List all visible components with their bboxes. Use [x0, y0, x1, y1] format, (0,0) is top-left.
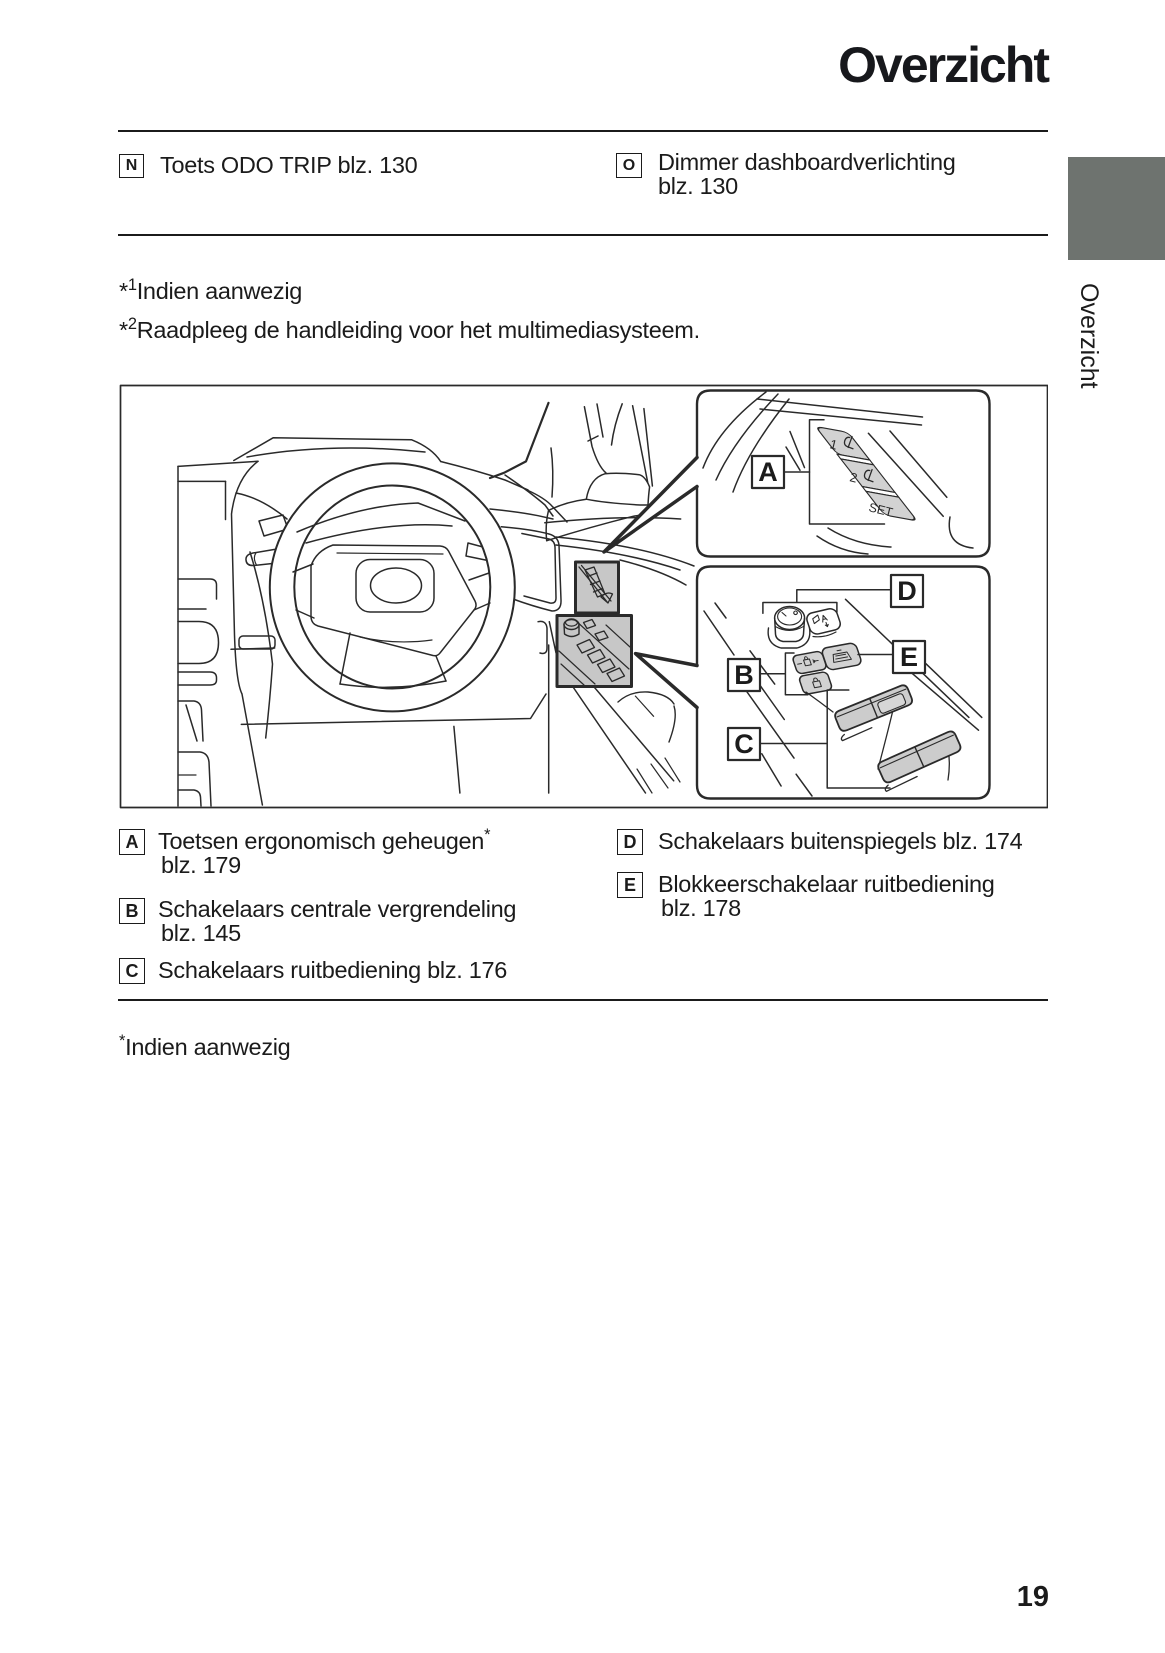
svg-text:C: C [734, 729, 754, 759]
svg-text:B: B [734, 660, 754, 690]
svg-text:E: E [900, 642, 918, 672]
svg-text:A: A [758, 457, 778, 487]
svg-text:D: D [897, 576, 917, 606]
svg-text:2: 2 [848, 469, 859, 485]
